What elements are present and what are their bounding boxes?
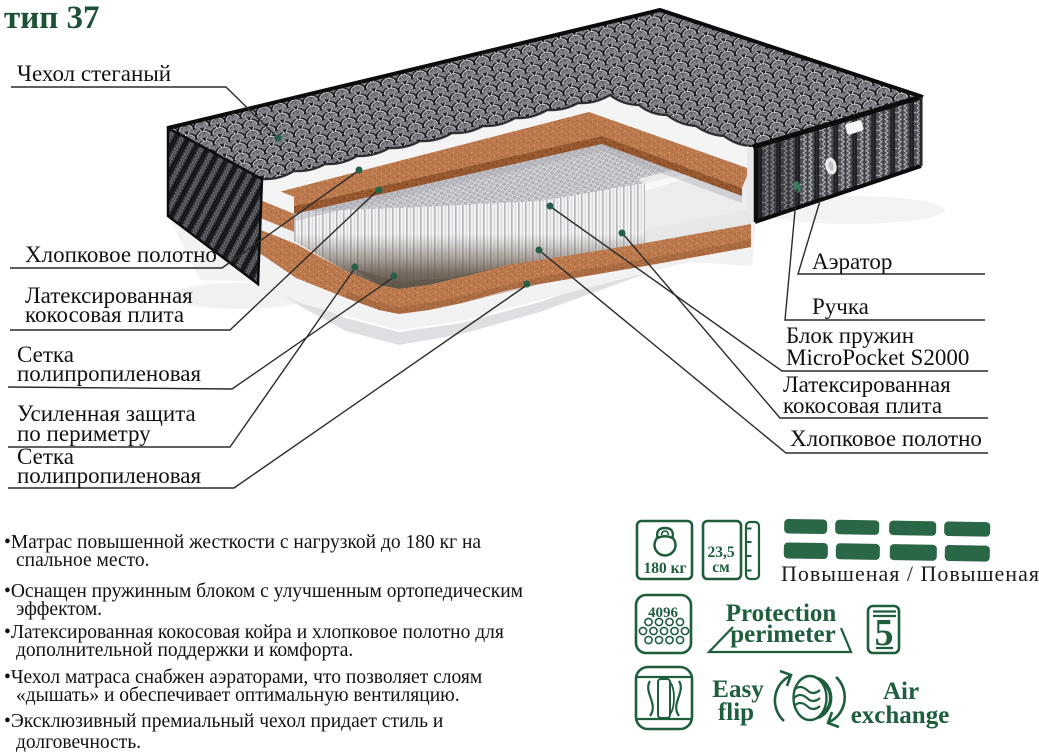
svg-text:кокосовая плита: кокосовая плита — [25, 302, 184, 327]
svg-text:долговечность.: долговечность. — [16, 732, 141, 752]
svg-text:Air: Air — [883, 678, 919, 705]
svg-text:дополнительной поддержки и ком: дополнительной поддержки и комфорта. — [16, 640, 353, 661]
svg-text:кокосовая плита: кокосовая плита — [783, 393, 942, 418]
svg-text:Повышеная / Повышеная: Повышеная / Повышеная — [781, 561, 1039, 586]
svg-text:•Эксклюзивный премиальный чехо: •Эксклюзивный премиальный чехол придает … — [4, 711, 443, 732]
svg-text:см: см — [712, 559, 730, 576]
svg-text:4096: 4096 — [648, 605, 679, 621]
svg-text:полипропиленовая: полипропиленовая — [17, 463, 201, 488]
svg-text:Хлопковое полотно: Хлопковое полотно — [25, 242, 217, 267]
svg-text:Аэратор: Аэратор — [812, 249, 892, 274]
svg-text:Хлопковое полотно: Хлопковое полотно — [790, 426, 982, 451]
svg-text:perimeter: perimeter — [730, 621, 835, 648]
svg-text:Ручка: Ручка — [812, 294, 869, 319]
svg-text:полипропиленовая: полипропиленовая — [17, 361, 201, 386]
svg-text:эффектом.: эффектом. — [16, 599, 102, 620]
svg-text:«дышать» и обеспечивает оптима: «дышать» и обеспечивает оптимальную вент… — [16, 685, 460, 706]
svg-text:Чехол стеганый: Чехол стеганый — [17, 61, 171, 86]
svg-text:спальное место.: спальное место. — [16, 550, 150, 571]
svg-text:180 кг: 180 кг — [643, 560, 686, 577]
svg-text:по периметру: по периметру — [17, 421, 151, 446]
svg-text:тип 37: тип 37 — [4, 0, 100, 36]
svg-text:flip: flip — [718, 699, 754, 726]
svg-text:MicroPocket S2000: MicroPocket S2000 — [786, 345, 969, 370]
svg-text:exchange: exchange — [851, 702, 950, 729]
